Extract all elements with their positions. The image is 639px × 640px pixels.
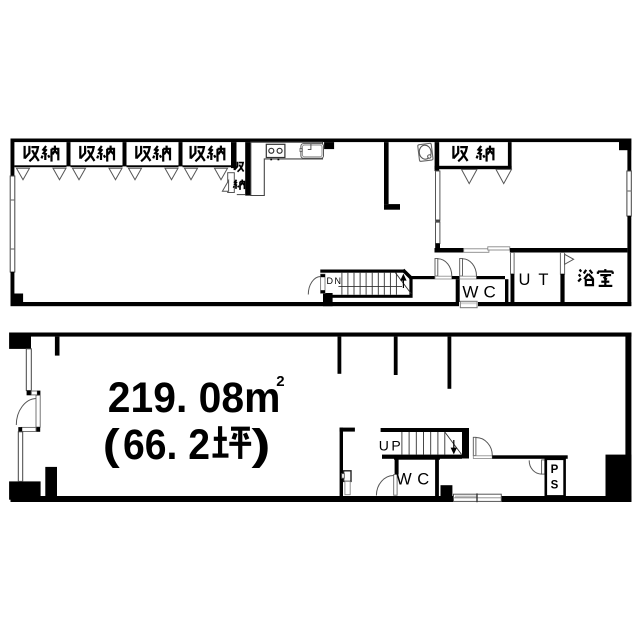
svg-text:2: 2 [276, 373, 284, 390]
svg-text:): ) [252, 421, 271, 469]
svg-text:UT: UT [519, 271, 557, 289]
svg-text:WC: WC [462, 282, 500, 301]
svg-text:P: P [551, 464, 559, 476]
svg-text:WC: WC [396, 470, 435, 488]
svg-text:S: S [551, 479, 559, 491]
svg-text:219. 08m: 219. 08m [108, 374, 281, 422]
svg-text:66. 2: 66. 2 [123, 421, 210, 469]
svg-text:(: ( [103, 421, 121, 469]
svg-text:UP: UP [379, 438, 403, 454]
svg-text:DN: DN [327, 276, 343, 286]
